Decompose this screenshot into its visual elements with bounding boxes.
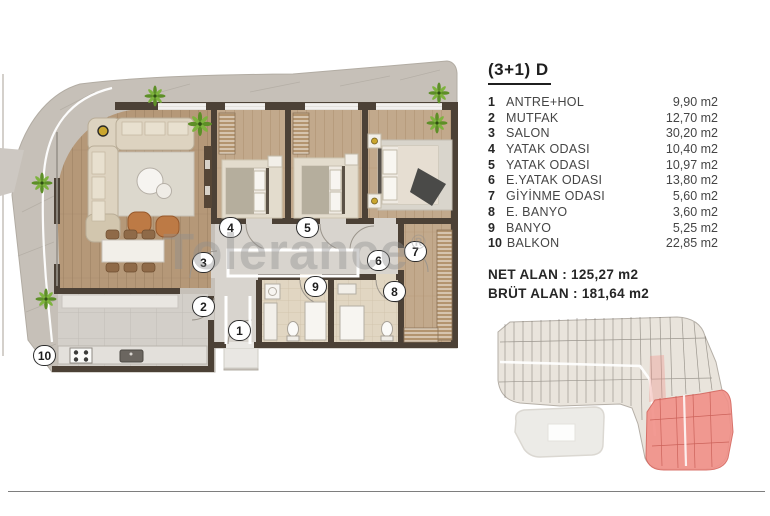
- legend-room-area: 12,70 m2: [666, 111, 718, 125]
- wardrobe: [437, 230, 452, 340]
- brut-area: BRÜT ALAN : 181,64 m2: [488, 284, 718, 303]
- counter: [62, 295, 178, 308]
- legend-panel: (3+1) D 1 ANTRE+HOL 9,90 m2 2 MUTFAK 12,…: [488, 60, 718, 303]
- legend-room-number: 6: [488, 173, 501, 187]
- legend-room-name: YATAK ODASI: [506, 158, 590, 172]
- nightstand: [345, 154, 358, 165]
- legend-room-area: 5,60 m2: [673, 189, 718, 203]
- legend-room-area: 3,60 m2: [673, 205, 718, 219]
- sink: [338, 284, 356, 294]
- legend-room-name: BALKON: [507, 236, 560, 250]
- wardrobe: [404, 328, 438, 342]
- legend-rows: 1 ANTRE+HOL 9,90 m2 2 MUTFAK 12,70 m2 3 …: [488, 95, 718, 252]
- legend-row: 2 MUTFAK 12,70 m2: [488, 111, 718, 127]
- room-marker-10: 10: [33, 345, 56, 366]
- shower: [340, 306, 364, 340]
- legend-room-name: BANYO: [506, 221, 551, 235]
- room-marker-9: 9: [304, 276, 327, 297]
- dining-table: [102, 240, 164, 262]
- stove: [70, 348, 92, 363]
- net-area: NET ALAN : 125,27 m2: [488, 265, 718, 284]
- nightstand: [268, 156, 282, 167]
- legend-row: 10 BALKON 22,85 m2: [488, 236, 718, 252]
- dining-set: [102, 230, 164, 272]
- legend-row: 4 YATAK ODASI 10,40 m2: [488, 142, 718, 158]
- legend-room-area: 30,20 m2: [666, 126, 718, 140]
- toilet: [288, 322, 299, 337]
- plan-title: (3+1) D: [488, 60, 551, 85]
- legend-room-number: 5: [488, 158, 501, 172]
- legend-row: 9 BANYO 5,25 m2: [488, 221, 718, 237]
- room-marker-4: 4: [219, 217, 242, 238]
- room-marker-3: 3: [192, 252, 215, 273]
- legend-room-area: 10,97 m2: [666, 158, 718, 172]
- legend-row: 5 YATAK ODASI 10,97 m2: [488, 158, 718, 174]
- wardrobe: [293, 113, 309, 154]
- legend-room-name: E. BANYO: [506, 205, 567, 219]
- legend-room-area: 10,40 m2: [666, 142, 718, 156]
- legend-totals: NET ALAN : 125,27 m2 BRÜT ALAN : 181,64 …: [488, 265, 718, 303]
- room-marker-8: 8: [383, 281, 406, 302]
- legend-room-area: 13,80 m2: [666, 173, 718, 187]
- site-highlight: [646, 390, 733, 470]
- legend-room-area: 9,90 m2: [673, 95, 718, 109]
- sink: [120, 350, 143, 362]
- legend-room-name: E.YATAK ODASI: [506, 173, 602, 187]
- legend-room-name: ANTRE+HOL: [506, 95, 584, 109]
- armchair: [156, 216, 179, 237]
- legend-row: 6 E.YATAK ODASI 13,80 m2: [488, 173, 718, 189]
- washing-machine: [265, 284, 280, 299]
- entry-landing: [224, 348, 258, 368]
- shower: [305, 302, 326, 340]
- room-marker-1: 1: [228, 320, 251, 341]
- legend-room-area: 5,25 m2: [673, 221, 718, 235]
- floorplan-page: 12345678910 (3+1) D 1 ANTRE+HOL 9,90 m2 …: [0, 0, 770, 516]
- legend-room-number: 7: [488, 189, 501, 203]
- room-marker-6: 6: [367, 250, 390, 271]
- legend-room-number: 3: [488, 126, 501, 140]
- legend-row: 8 E. BANYO 3,60 m2: [488, 205, 718, 221]
- room-marker-5: 5: [296, 217, 319, 238]
- toilet: [382, 322, 393, 337]
- legend-room-name: GİYİNME ODASI: [506, 189, 605, 203]
- legend-row: 1 ANTRE+HOL 9,90 m2: [488, 95, 718, 111]
- legend-room-name: YATAK ODASI: [506, 142, 590, 156]
- legend-room-number: 9: [488, 221, 501, 235]
- legend-room-number: 1: [488, 95, 501, 109]
- legend-room-area: 22,85 m2: [666, 236, 718, 250]
- room-marker-7: 7: [404, 241, 427, 262]
- site-plan: [498, 317, 733, 470]
- legend-room-number: 8: [488, 205, 501, 219]
- legend-room-number: 2: [488, 111, 501, 125]
- footer-divider: [8, 491, 765, 492]
- legend-row: 7 GİYİNME ODASI 5,60 m2: [488, 189, 718, 205]
- legend-room-number: 10: [488, 236, 502, 250]
- legend-room-name: SALON: [506, 126, 550, 140]
- wardrobe: [219, 113, 235, 154]
- room-marker-2: 2: [192, 296, 215, 317]
- legend-room-name: MUTFAK: [506, 111, 559, 125]
- tv-unit: [204, 146, 212, 208]
- cabinet: [264, 303, 277, 340]
- master-bedroom-furniture: [368, 134, 452, 210]
- legend-room-number: 4: [488, 142, 501, 156]
- legend-row: 3 SALON 30,20 m2: [488, 126, 718, 142]
- ceiling-lamp: [98, 126, 108, 136]
